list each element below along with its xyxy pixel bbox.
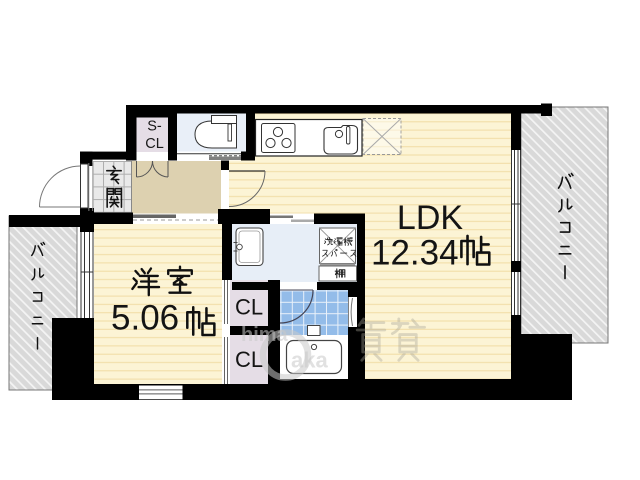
svg-text:CL: CL bbox=[235, 347, 263, 372]
svg-text:aka: aka bbox=[291, 348, 328, 373]
svg-text:LDK: LDK bbox=[397, 199, 463, 237]
svg-text:5.06: 5.06 bbox=[111, 299, 179, 338]
svg-text:12.34: 12.34 bbox=[371, 234, 459, 273]
svg-text:CL: CL bbox=[145, 136, 164, 152]
svg-text:CL: CL bbox=[235, 295, 263, 320]
svg-text:S-: S- bbox=[147, 119, 162, 135]
